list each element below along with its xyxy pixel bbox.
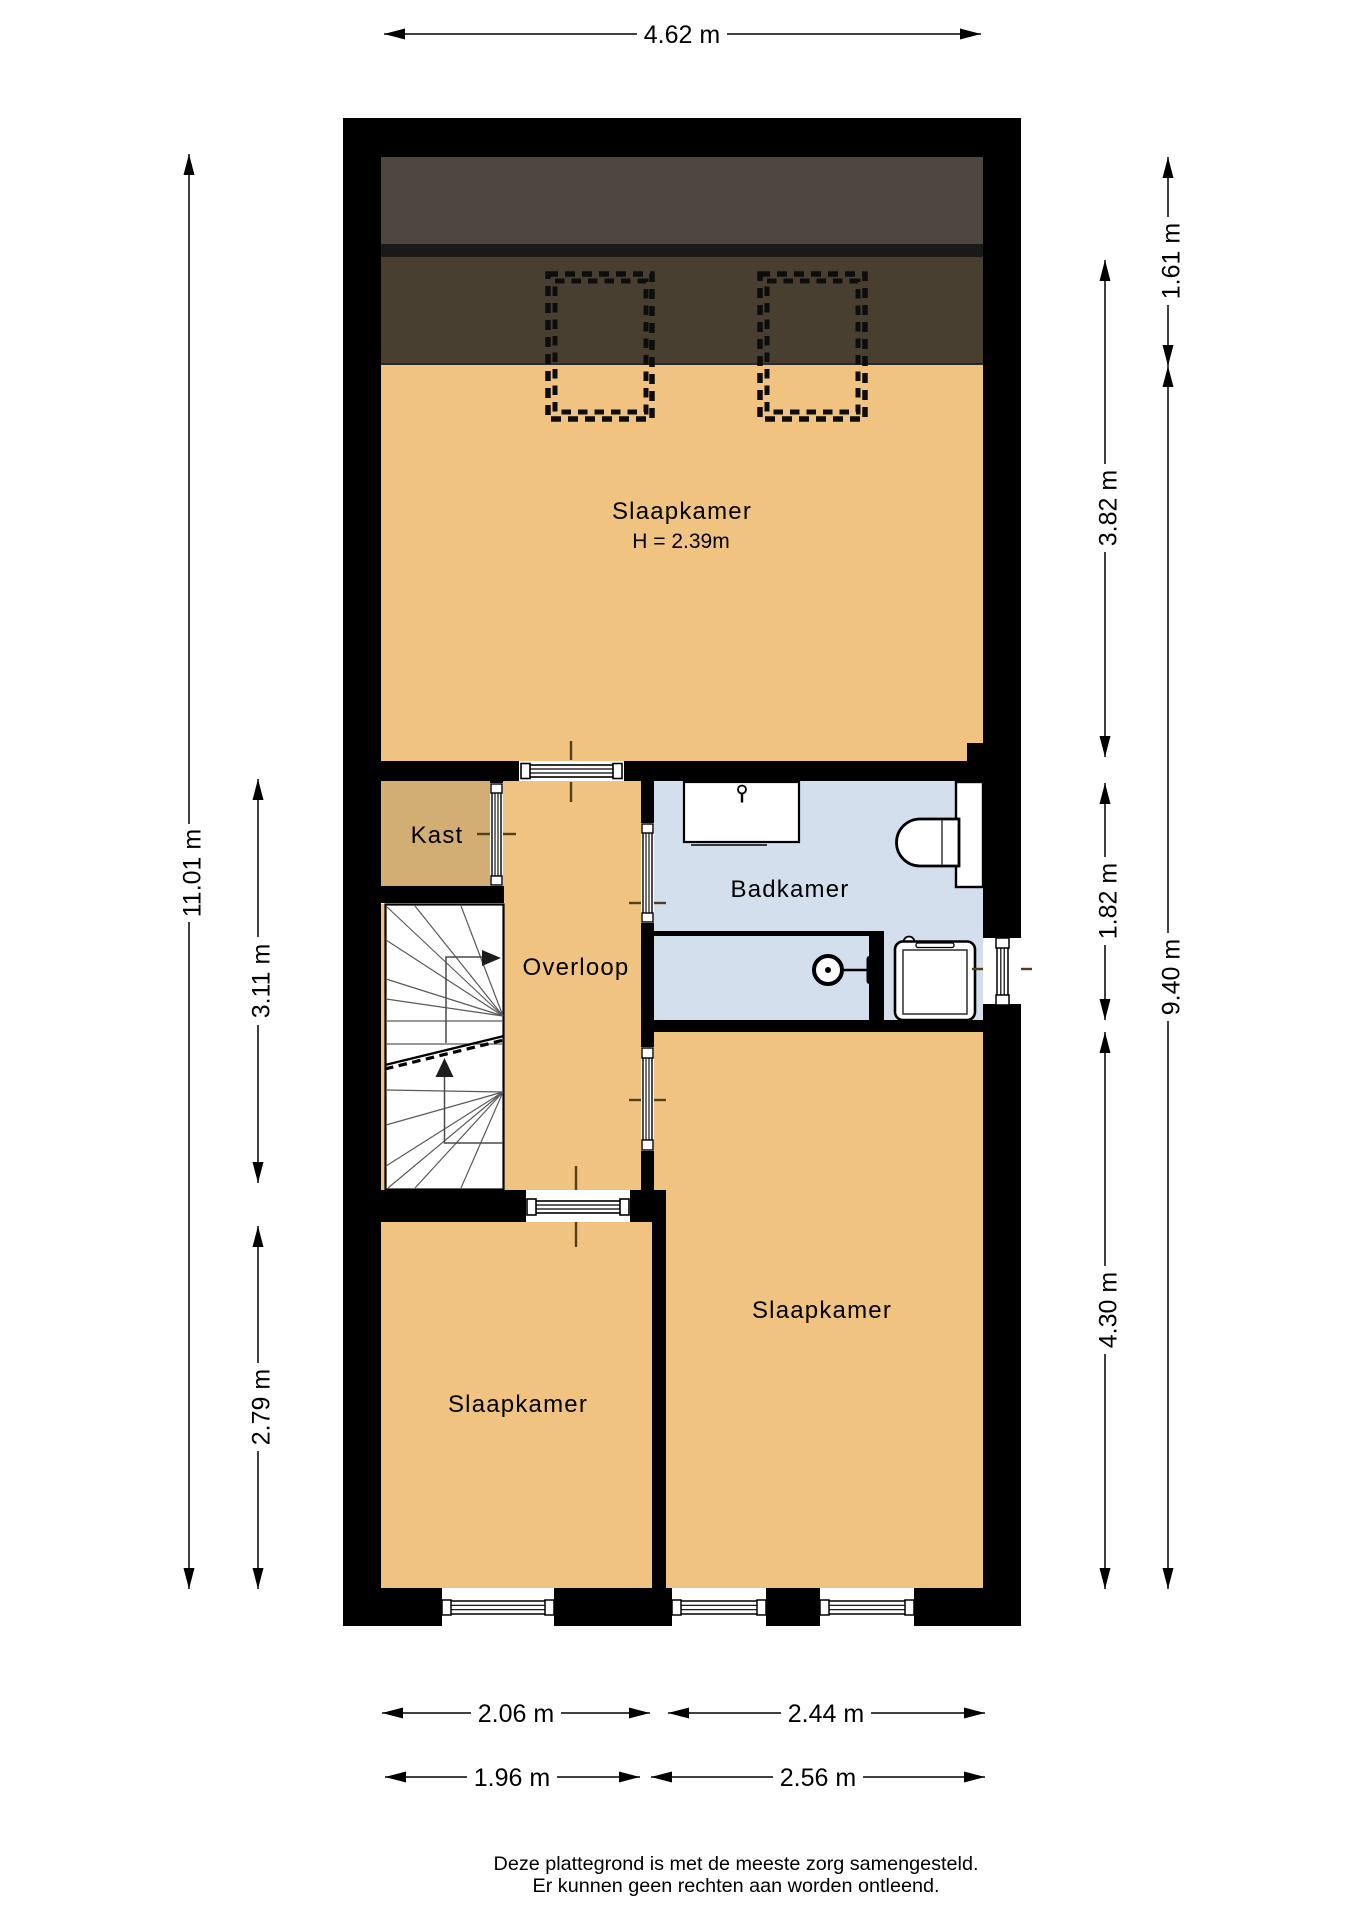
svg-text:4.30 m: 4.30 m <box>1095 1272 1123 1348</box>
svg-text:H = 2.39m: H = 2.39m <box>632 530 729 553</box>
svg-text:Badkamer: Badkamer <box>731 876 850 903</box>
svg-text:1.96 m: 1.96 m <box>474 1764 550 1792</box>
svg-text:Slaapkamer: Slaapkamer <box>752 1297 892 1324</box>
svg-text:11.01 m: 11.01 m <box>179 829 207 917</box>
svg-text:3.11 m: 3.11 m <box>248 944 276 1019</box>
svg-text:2.79 m: 2.79 m <box>248 1369 276 1445</box>
svg-text:3.82 m: 3.82 m <box>1095 470 1123 546</box>
svg-text:2.44 m: 2.44 m <box>788 1700 864 1728</box>
svg-text:4.62 m: 4.62 m <box>644 21 720 49</box>
svg-text:Slaapkamer: Slaapkamer <box>448 1391 588 1418</box>
svg-text:Kast: Kast <box>411 822 464 849</box>
svg-text:1.61 m: 1.61 m <box>1158 223 1186 299</box>
svg-text:Er kunnen geen rechten aan wor: Er kunnen geen rechten aan worden ontlee… <box>533 1875 940 1897</box>
svg-text:Deze plattegrond is met de mee: Deze plattegrond is met de meeste zorg s… <box>494 1853 979 1875</box>
svg-text:2.06 m: 2.06 m <box>478 1700 554 1728</box>
svg-text:Overloop: Overloop <box>523 954 630 981</box>
svg-text:2.56 m: 2.56 m <box>780 1764 856 1792</box>
svg-text:9.40 m: 9.40 m <box>1158 939 1186 1015</box>
svg-text:1.82 m: 1.82 m <box>1095 863 1123 939</box>
svg-text:Slaapkamer: Slaapkamer <box>612 498 752 525</box>
